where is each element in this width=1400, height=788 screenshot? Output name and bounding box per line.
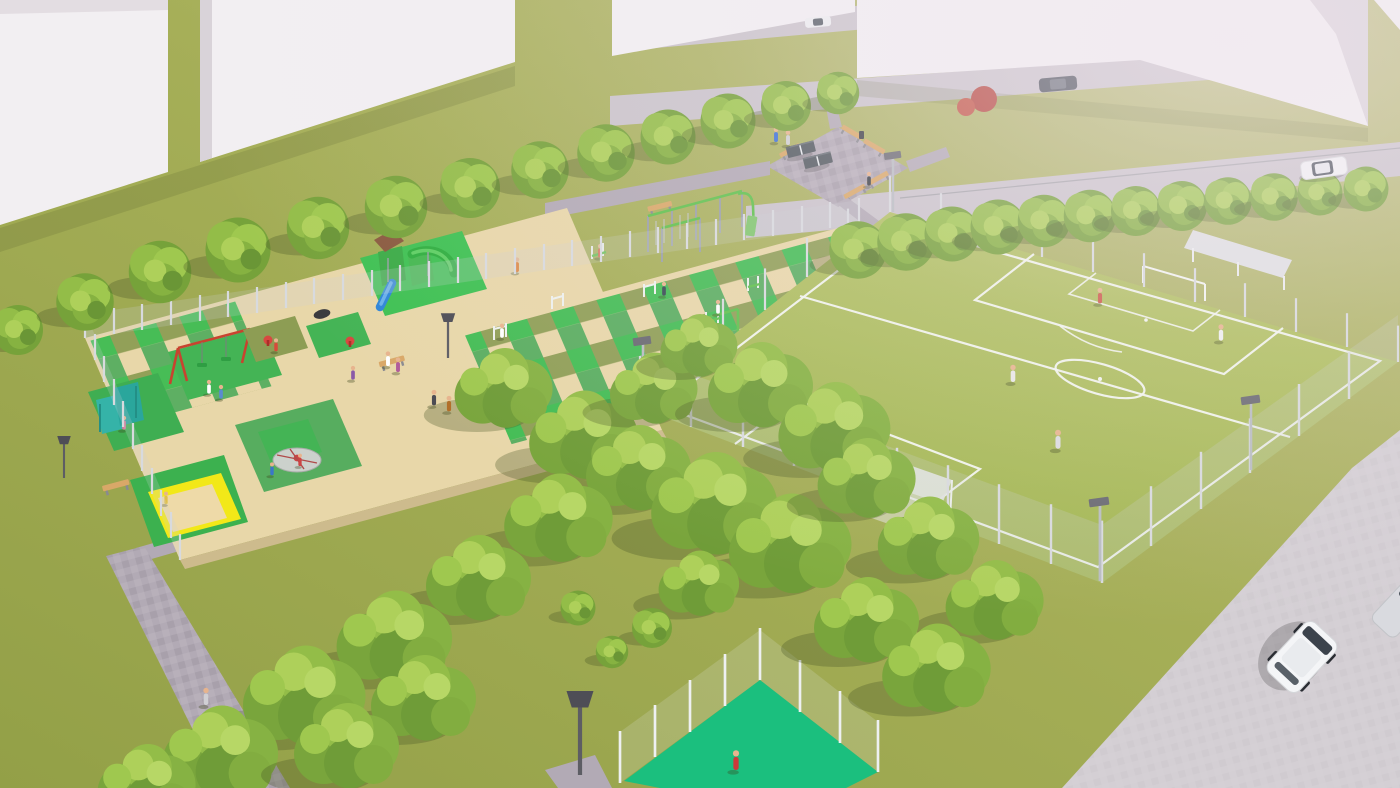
- park-render: [0, 0, 1400, 788]
- atmosphere-haze: [0, 0, 1400, 788]
- scene-canvas: [0, 0, 1400, 788]
